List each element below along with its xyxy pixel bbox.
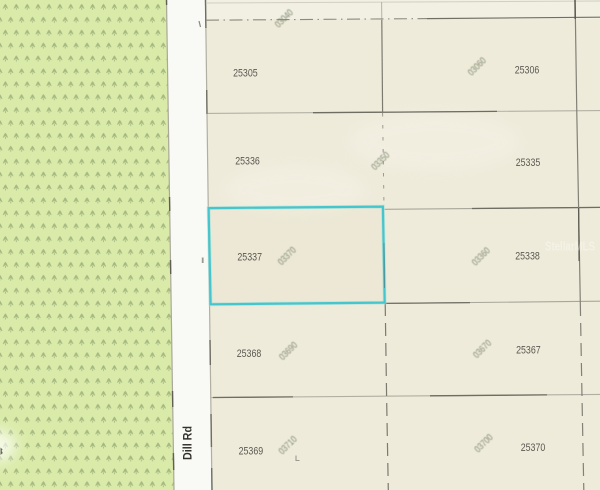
svg-text:25369: 25369 — [239, 446, 264, 458]
svg-text:25306: 25306 — [515, 64, 540, 76]
svg-text:25370: 25370 — [521, 442, 546, 454]
svg-text:25338: 25338 — [515, 251, 540, 263]
svg-text:25368: 25368 — [237, 348, 262, 360]
svg-text:StellarMLS: StellarMLS — [545, 239, 595, 254]
svg-text:25305: 25305 — [233, 67, 258, 79]
svg-text:25337: 25337 — [237, 251, 262, 263]
svg-text:25367: 25367 — [516, 344, 541, 356]
svg-text:Dill Rd: Dill Rd — [181, 426, 195, 460]
svg-text:25335: 25335 — [516, 157, 541, 169]
svg-text:25336: 25336 — [235, 156, 260, 168]
